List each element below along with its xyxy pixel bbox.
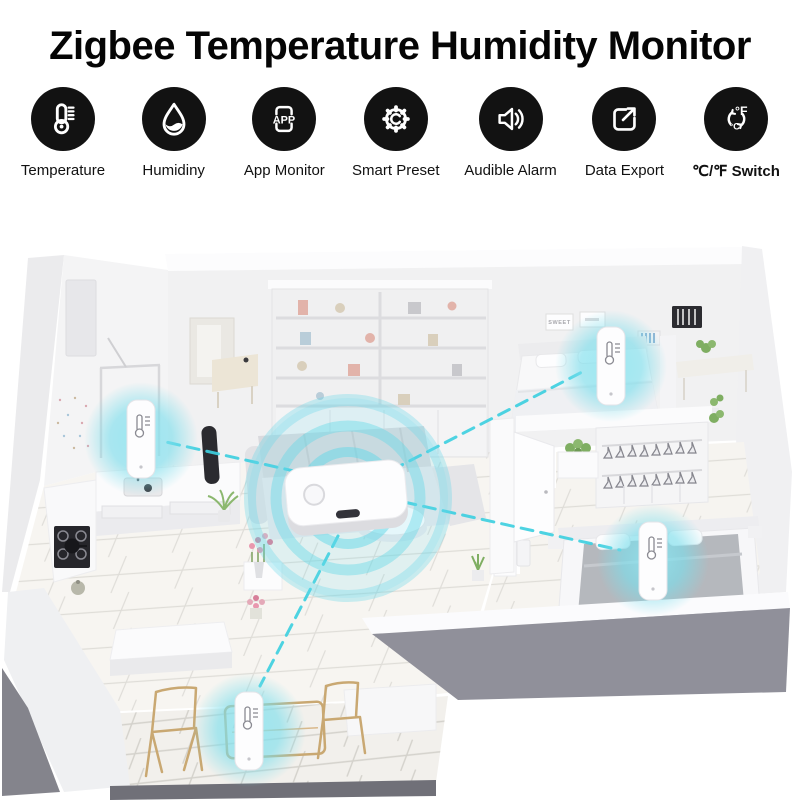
feature-label: Humidiny [142, 162, 205, 179]
feature-label: Data Export [585, 162, 664, 179]
feature-smart-preset: Smart Preset [352, 87, 440, 179]
feature-temperature: Temperature [20, 87, 106, 179]
page-title: Zigbee Temperature Humidity Monitor [0, 0, 800, 69]
feature-label: Smart Preset [352, 162, 440, 179]
feature-humidity: Humidiny [131, 87, 217, 179]
hub-button [303, 484, 325, 506]
floorplan-illustration: SWEET [0, 240, 800, 800]
feature-data-export: Data Export [581, 87, 667, 179]
speaker-icon [479, 87, 543, 151]
feature-label: Audible Alarm [464, 162, 557, 179]
striped-art [672, 306, 702, 328]
sensor-4 [192, 673, 306, 787]
wall-art-text: SWEET [548, 320, 571, 326]
cabinet [66, 280, 96, 356]
feature-audible-alarm: Audible Alarm [464, 87, 557, 179]
feature-row: Temperature Humidiny APP App Monitor [0, 69, 800, 180]
thermometer-icon [31, 87, 95, 151]
feature-app-monitor: APP App Monitor [241, 87, 327, 179]
cooktop [54, 526, 90, 568]
feature-label: Temperature [21, 162, 105, 179]
app-monitor-icon: APP [252, 87, 316, 151]
sensor-1 [84, 382, 198, 496]
app-icon-text: APP [273, 114, 295, 126]
gear-icon [364, 87, 428, 151]
feature-label: App Monitor [244, 162, 325, 179]
water-drop-icon [142, 87, 206, 151]
fahrenheit-glyph: °F [735, 104, 748, 118]
feature-temp-unit-switch: °F °C ℃/℉ Switch [692, 87, 780, 180]
hub-device [248, 398, 448, 598]
open-door [514, 432, 554, 542]
sensor-3 [597, 504, 709, 616]
export-icon [592, 87, 656, 151]
temp-unit-switch-icon: °F °C [704, 87, 768, 151]
feature-label: ℃/℉ Switch [692, 162, 780, 180]
sensor-2 [555, 310, 667, 422]
